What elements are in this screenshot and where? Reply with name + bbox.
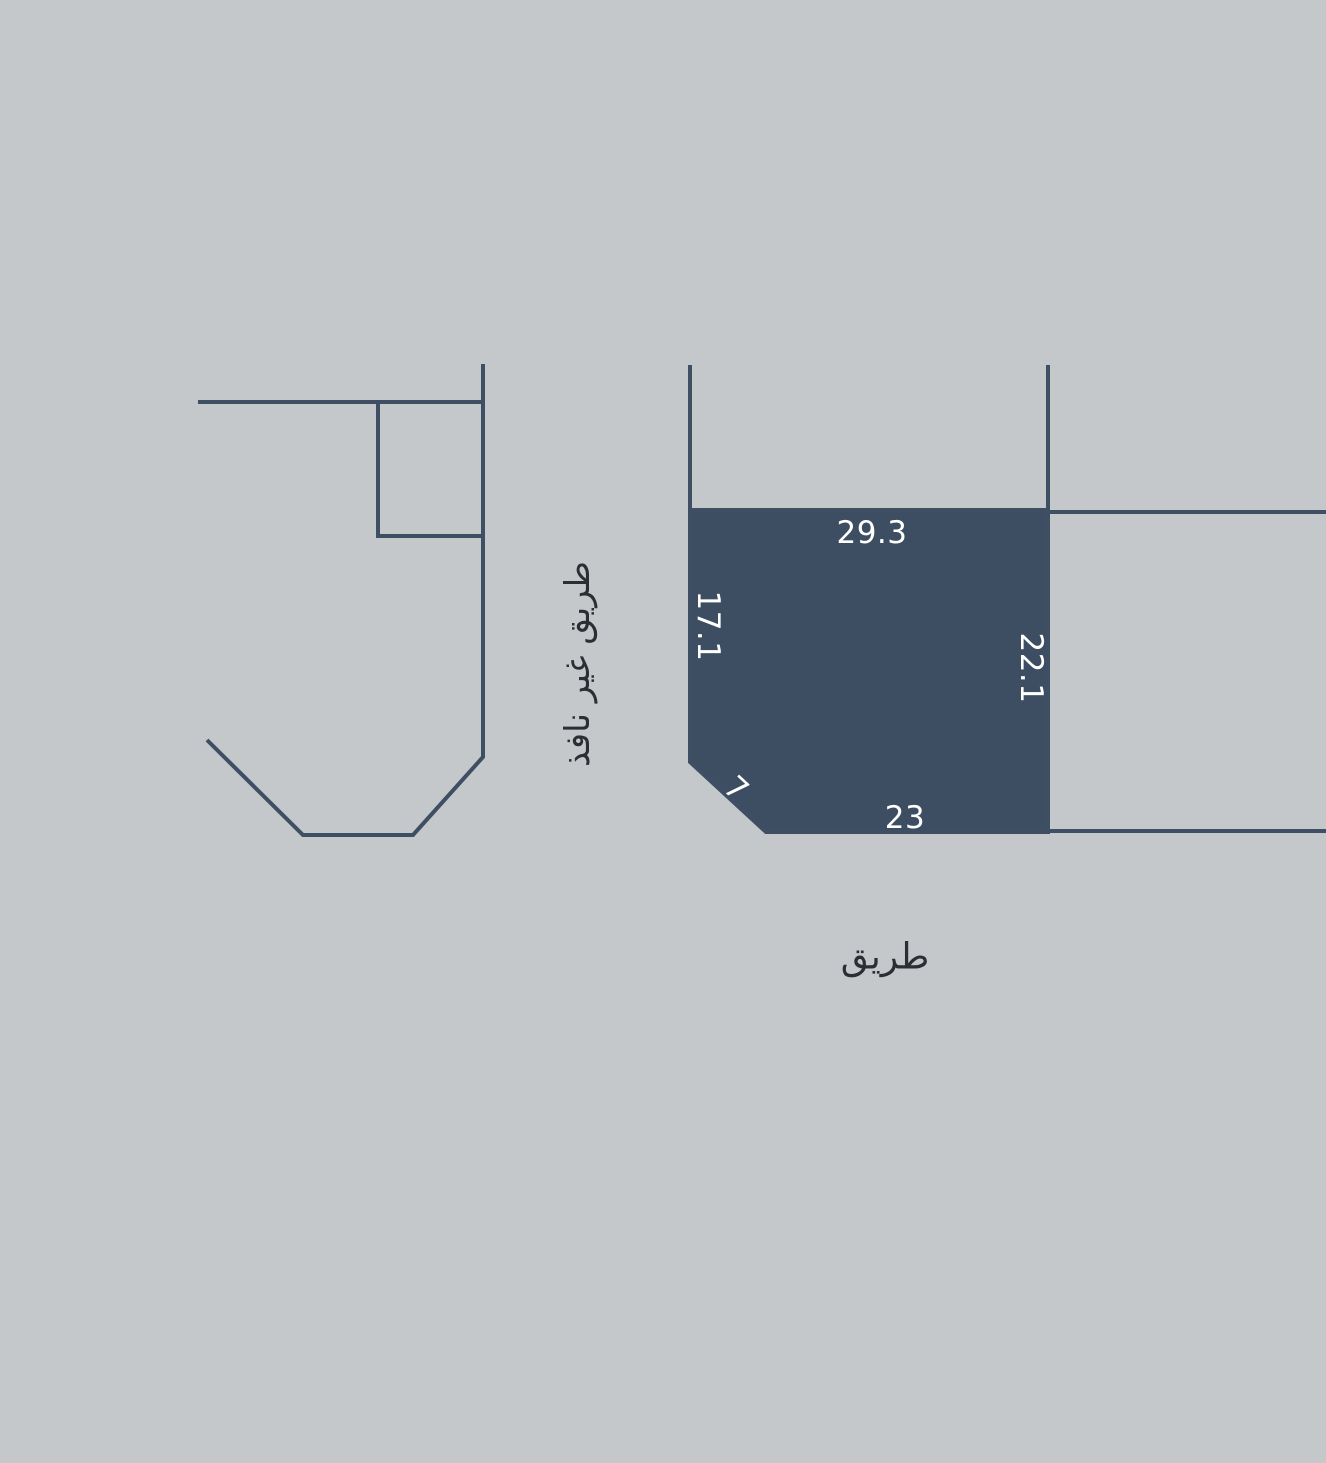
parcel-map-canvas: 29.3 17.1 22.1 23 7 طريق غير نافذ طريق <box>0 0 1326 1463</box>
main-road-label: طريق <box>841 937 930 978</box>
dimension-label-left: 17.1 <box>690 590 726 661</box>
dimension-label-bottom: 23 <box>885 800 925 836</box>
left-block-outline <box>207 364 483 835</box>
map-geometry-layer <box>0 0 1326 1463</box>
left-block-inner-divider <box>378 402 483 536</box>
dead-end-road-label: طريق غير نافذ <box>558 561 598 767</box>
dimension-label-right: 22.1 <box>1013 632 1049 703</box>
dimension-label-top: 29.3 <box>836 515 907 551</box>
